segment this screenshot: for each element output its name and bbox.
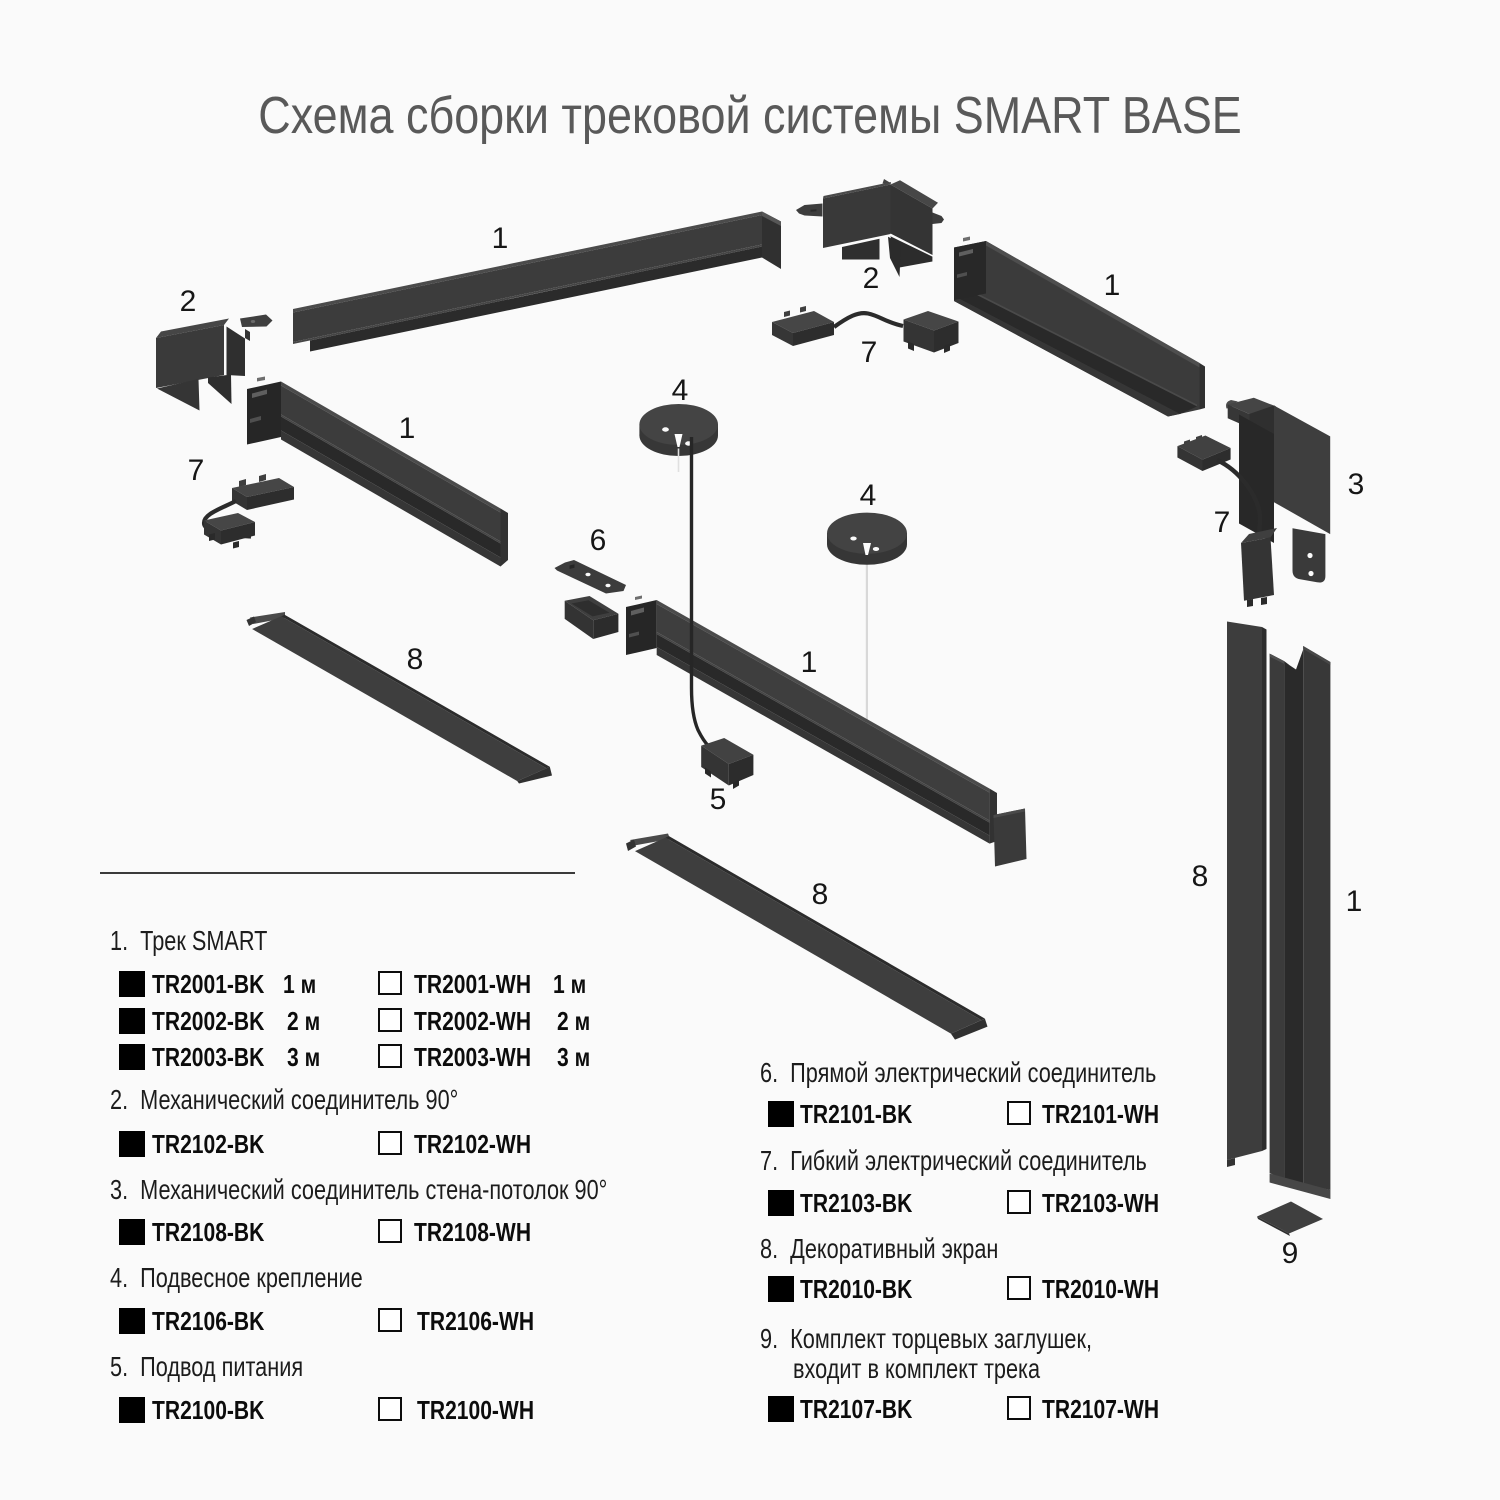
- svg-text:2: 2: [863, 262, 880, 295]
- svg-text:1: 1: [399, 412, 416, 445]
- svg-text:4: 4: [860, 479, 877, 512]
- svg-text:1: 1: [1346, 885, 1363, 918]
- svg-text:2: 2: [180, 285, 197, 318]
- svg-text:1: 1: [801, 646, 818, 679]
- svg-text:4: 4: [672, 374, 689, 407]
- svg-text:1: 1: [492, 222, 509, 255]
- svg-text:7: 7: [861, 336, 878, 369]
- svg-text:8: 8: [1192, 860, 1209, 893]
- svg-text:8: 8: [812, 878, 829, 911]
- svg-text:7: 7: [188, 454, 205, 487]
- svg-text:7: 7: [1214, 506, 1231, 539]
- svg-text:8: 8: [407, 643, 424, 676]
- svg-text:6: 6: [590, 524, 607, 557]
- svg-text:9: 9: [1282, 1237, 1299, 1270]
- svg-text:3: 3: [1348, 468, 1365, 501]
- svg-text:5: 5: [710, 783, 727, 816]
- svg-text:1: 1: [1104, 269, 1121, 302]
